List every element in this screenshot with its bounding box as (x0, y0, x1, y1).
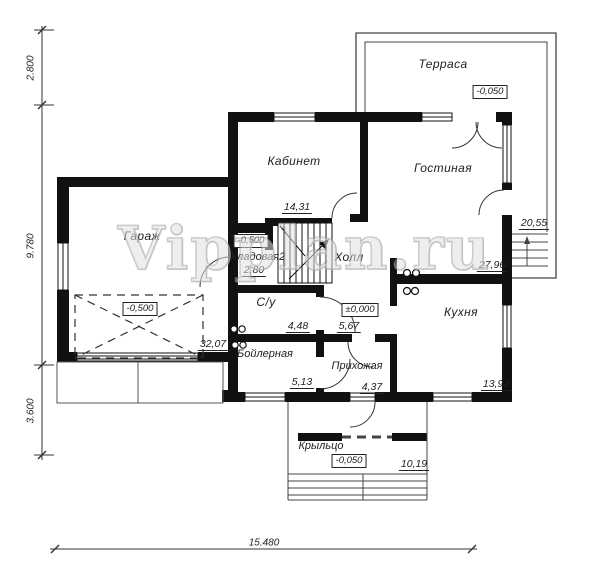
garage-apron (57, 362, 223, 403)
terrace-steps (512, 234, 548, 266)
level-badge-porch: -0,050 (332, 454, 367, 468)
room-label-entry: Прихожая (331, 360, 382, 372)
room-area-boiler: 5,13 (290, 377, 314, 389)
dimension-left-middle: 9.780 (26, 233, 37, 258)
door-entrance (350, 402, 375, 427)
room-area-porch: 10,19 (399, 459, 429, 471)
room-label-kitchen: Кухня (444, 305, 478, 319)
room-area-terrace: 20,55 (519, 218, 549, 230)
window-living-east (503, 125, 511, 183)
window-garage-west (58, 243, 68, 290)
room-label-living: Гостиная (414, 161, 472, 175)
level-badge-terrace: -0,050 (473, 85, 508, 99)
window-kitchen-south (433, 393, 472, 401)
garage-gate (77, 353, 198, 361)
room-area-garage: 32,07 (198, 339, 228, 351)
room-label-hall: Холл (334, 250, 363, 264)
door-terrace-right-leaf (476, 122, 502, 148)
room-area-bathroom: 4,48 (286, 321, 310, 333)
window-living-north (422, 113, 452, 121)
level-badge-garage: -0,500 (123, 302, 158, 316)
level-badge-storage: -0,500 (234, 234, 269, 248)
dimension-bottom: 15.480 (249, 538, 280, 549)
porch-steps (288, 474, 427, 500)
room-label-boiler: Бойлерная (237, 348, 293, 360)
room-label-study: Кабинет (267, 154, 320, 168)
floor-plan-canvas (0, 0, 600, 567)
window-kitchen-east (503, 305, 511, 348)
room-label-garage: Гараж (124, 229, 160, 243)
room-area-kitchen: 13,92 (481, 379, 511, 391)
room-area-living: 27,96 (477, 260, 507, 272)
dimension-left-bottom: 3.600 (26, 398, 37, 423)
staircase (278, 223, 332, 283)
room-area-entry: 4,37 (360, 382, 384, 394)
door-garage-storage (200, 257, 230, 287)
room-label-terrace: Терраса (418, 57, 467, 71)
floor-plan: Vipplan.ru Терраса -0,050 20,55 Кабинет … (0, 0, 600, 567)
door-living-east (479, 190, 504, 215)
window-study-north (274, 113, 315, 121)
door-terrace-left-leaf (452, 122, 478, 148)
room-area-study: 14,31 (282, 202, 312, 214)
level-badge-hall: ±0,000 (342, 303, 379, 317)
room-area-hall: 5,67 (337, 321, 361, 333)
dimension-left-top: 2.800 (26, 55, 37, 80)
room-label-bathroom: С/у (256, 295, 275, 309)
window-boiler-south (245, 393, 285, 401)
room-area-storage: 2,80 (242, 265, 266, 277)
room-label-porch: Крыльцо (298, 440, 343, 452)
entry-door-threshold (350, 393, 375, 401)
terrace-steps-arrow (524, 236, 530, 244)
room-label-storage: Кладовая2 (231, 251, 286, 263)
